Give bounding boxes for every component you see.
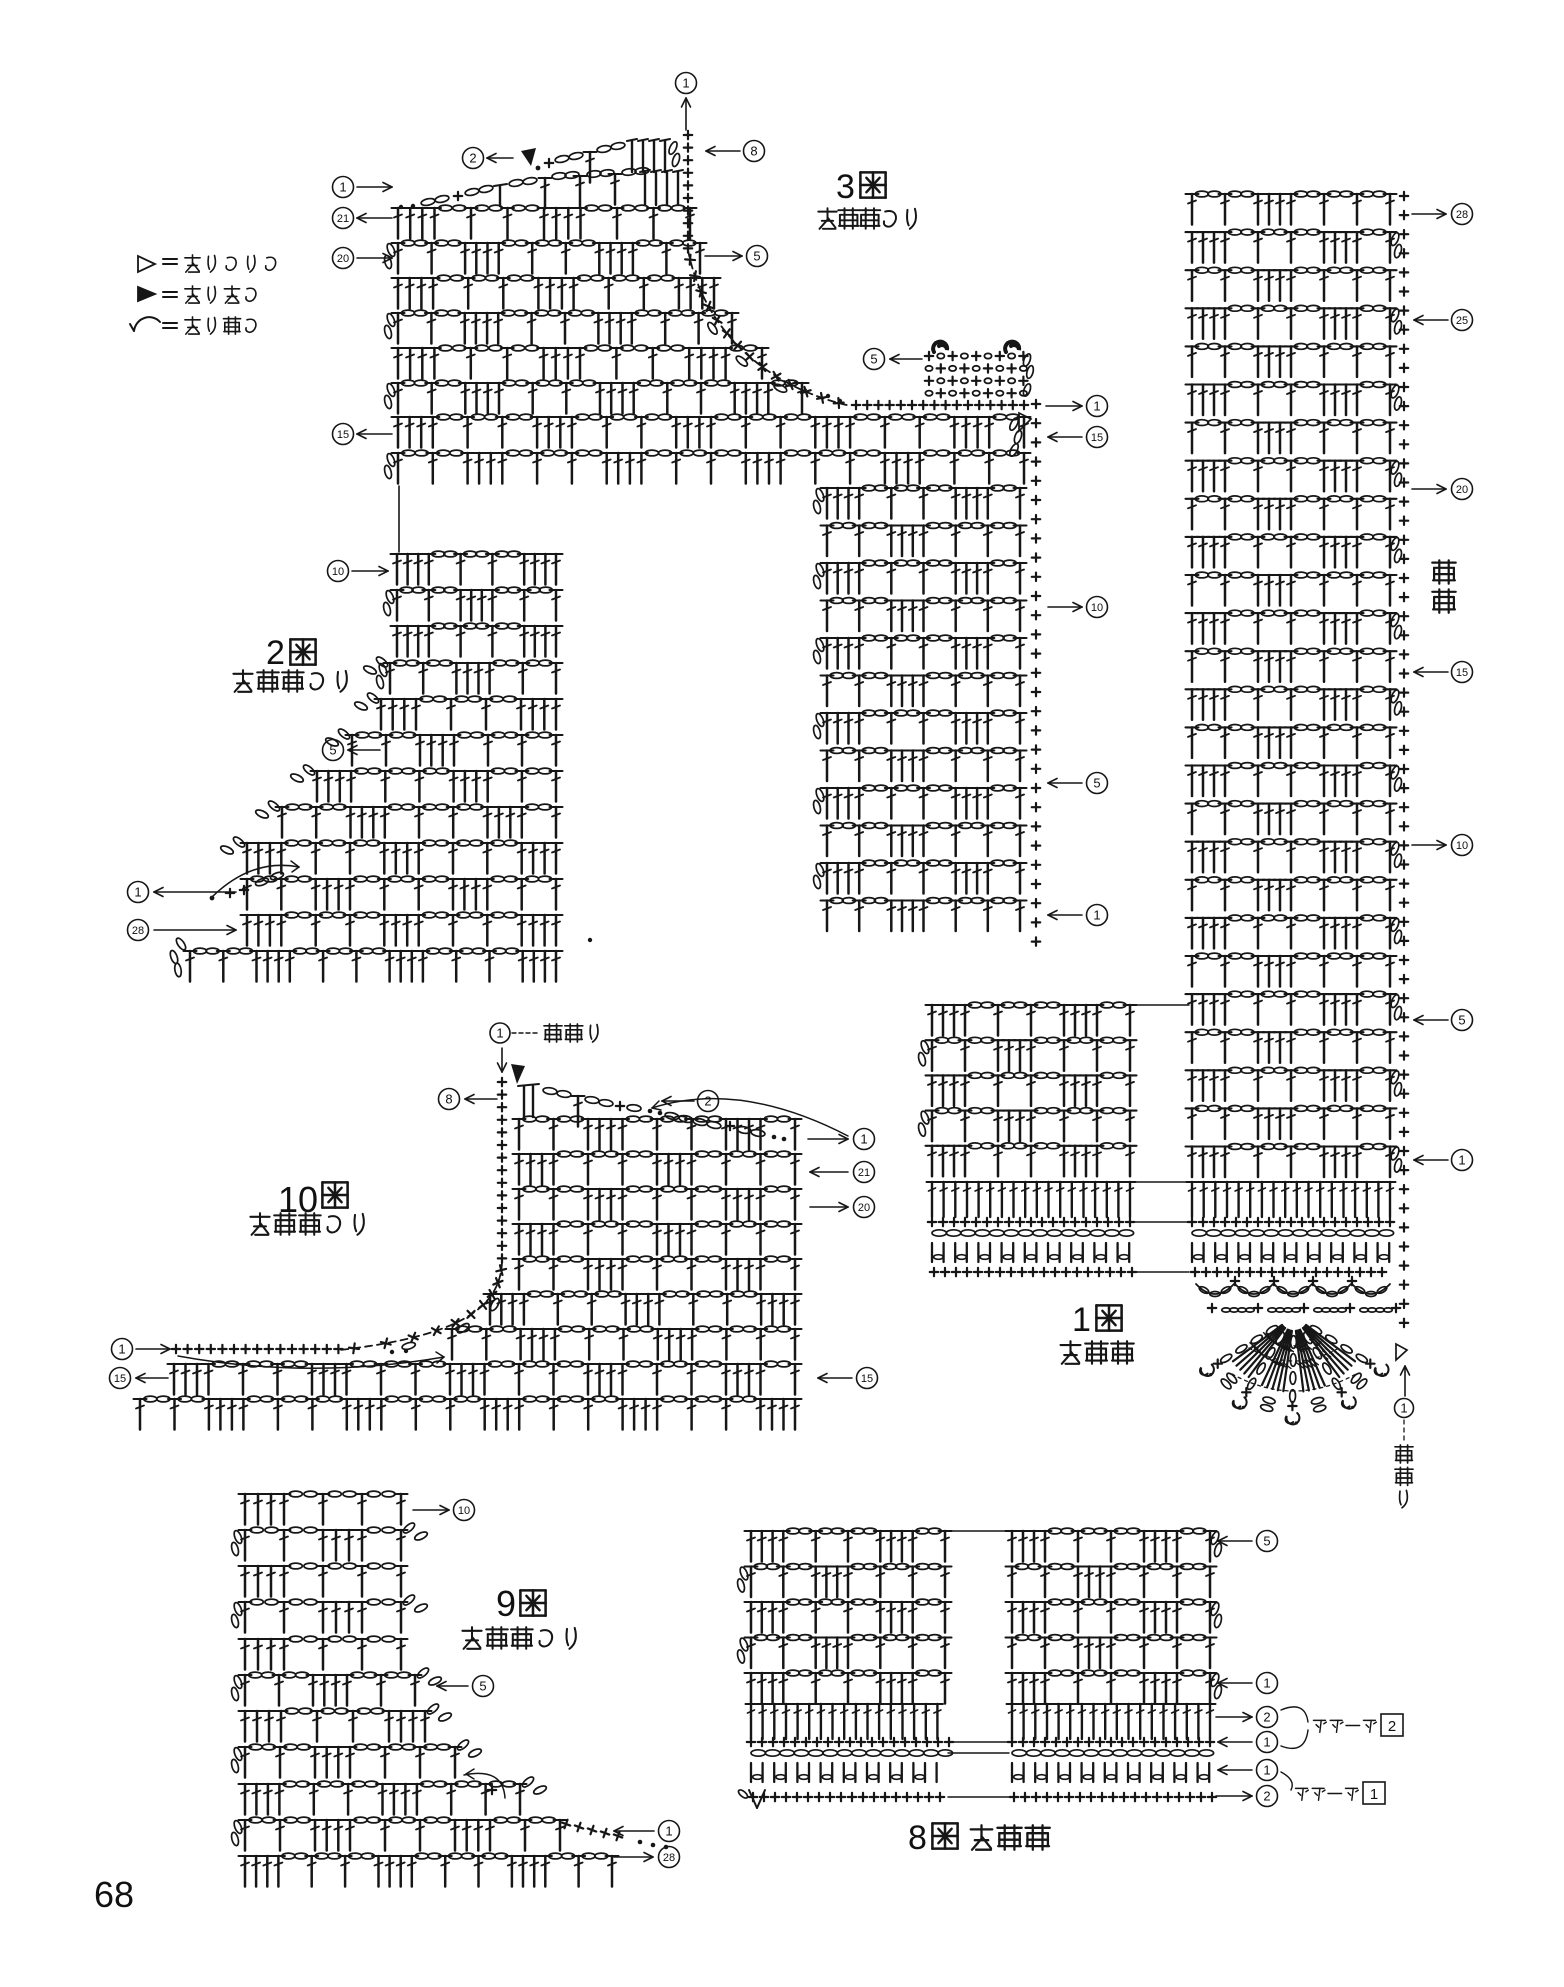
svg-text:1: 1 bbox=[1263, 1676, 1270, 1691]
svg-text:10: 10 bbox=[278, 1179, 318, 1220]
svg-text:1: 1 bbox=[1400, 1401, 1407, 1416]
svg-text:1: 1 bbox=[134, 885, 141, 900]
svg-text:1: 1 bbox=[1263, 1763, 1270, 1778]
svg-text:1: 1 bbox=[1072, 1301, 1091, 1339]
svg-text:21: 21 bbox=[858, 1167, 870, 1179]
svg-text:1: 1 bbox=[339, 180, 346, 195]
svg-text:1: 1 bbox=[682, 76, 689, 91]
svg-text:20: 20 bbox=[1456, 484, 1468, 496]
svg-text:20: 20 bbox=[858, 1202, 870, 1214]
svg-text:1: 1 bbox=[1093, 908, 1100, 923]
svg-text:1: 1 bbox=[1458, 1153, 1465, 1168]
svg-text:1: 1 bbox=[1370, 1786, 1378, 1803]
svg-text:15: 15 bbox=[1091, 432, 1103, 444]
svg-text:5: 5 bbox=[329, 743, 336, 758]
svg-text:15: 15 bbox=[1456, 667, 1468, 679]
svg-text:15: 15 bbox=[861, 1373, 873, 1385]
svg-text:1: 1 bbox=[118, 1342, 125, 1357]
svg-text:2: 2 bbox=[469, 151, 476, 166]
svg-text:2: 2 bbox=[1388, 1718, 1396, 1735]
svg-text:9: 9 bbox=[496, 1583, 516, 1624]
svg-text:10: 10 bbox=[458, 1505, 470, 1517]
svg-text:1: 1 bbox=[1263, 1735, 1270, 1750]
svg-text:5: 5 bbox=[1263, 1534, 1270, 1549]
svg-text:1: 1 bbox=[1093, 399, 1100, 414]
svg-text:2: 2 bbox=[266, 634, 285, 672]
svg-text:1: 1 bbox=[665, 1824, 672, 1839]
svg-text:28: 28 bbox=[1456, 209, 1468, 221]
svg-text:3: 3 bbox=[836, 168, 855, 206]
svg-text:25: 25 bbox=[1456, 315, 1468, 327]
svg-text:10: 10 bbox=[1091, 602, 1103, 614]
svg-text:28: 28 bbox=[132, 925, 144, 937]
svg-text:15: 15 bbox=[337, 429, 349, 441]
svg-text:5: 5 bbox=[1093, 776, 1100, 791]
svg-text:1: 1 bbox=[496, 1026, 503, 1041]
svg-text:2: 2 bbox=[1263, 1789, 1270, 1804]
svg-text:2: 2 bbox=[704, 1094, 711, 1109]
svg-text:28: 28 bbox=[663, 1852, 675, 1864]
svg-text:21: 21 bbox=[337, 213, 349, 225]
svg-text:2: 2 bbox=[1263, 1710, 1270, 1725]
svg-text:15: 15 bbox=[114, 1373, 126, 1385]
svg-text:8: 8 bbox=[750, 144, 757, 159]
svg-text:5: 5 bbox=[479, 1679, 486, 1694]
svg-text:10: 10 bbox=[332, 566, 344, 578]
svg-text:5: 5 bbox=[1458, 1013, 1465, 1028]
svg-text:68: 68 bbox=[94, 1874, 134, 1915]
svg-text:1: 1 bbox=[860, 1132, 867, 1147]
svg-text:5: 5 bbox=[870, 352, 877, 367]
svg-text:20: 20 bbox=[337, 253, 349, 265]
svg-text:8: 8 bbox=[908, 1819, 927, 1857]
svg-text:5: 5 bbox=[753, 249, 760, 264]
svg-text:10: 10 bbox=[1456, 840, 1468, 852]
svg-text:8: 8 bbox=[445, 1092, 452, 1107]
